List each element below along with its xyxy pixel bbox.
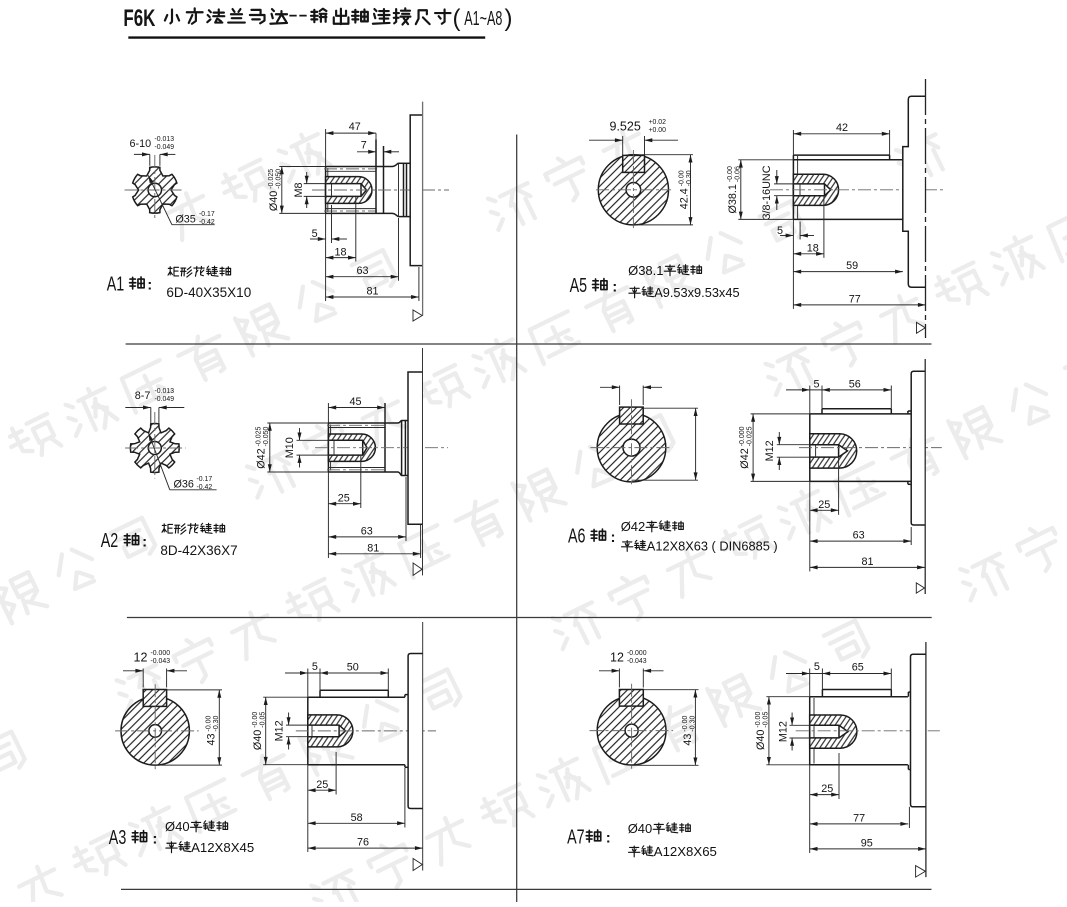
svg-text:25: 25	[338, 492, 350, 504]
svg-text::: :	[142, 533, 147, 550]
svg-text:63: 63	[357, 265, 369, 277]
svg-text:(: (	[453, 5, 461, 32]
svg-text:12: 12	[134, 651, 148, 665]
svg-text:M12: M12	[778, 721, 790, 742]
svg-text:A3: A3	[109, 827, 127, 849]
svg-text:-0.30: -0.30	[686, 170, 693, 186]
svg-text:-0.00: -0.00	[755, 712, 762, 728]
svg-text:25: 25	[818, 499, 830, 511]
svg-text:6-10: 6-10	[130, 138, 152, 150]
svg-text:-0.30: -0.30	[213, 715, 220, 731]
svg-text:-0.42: -0.42	[197, 484, 213, 491]
svg-text:43: 43	[682, 734, 694, 746]
svg-text:43: 43	[206, 733, 218, 745]
svg-text:81: 81	[862, 556, 874, 568]
svg-text:Ø42: Ø42	[739, 448, 751, 468]
svg-text::: :	[611, 529, 616, 546]
svg-text:63: 63	[361, 525, 373, 537]
svg-text:Ø35: Ø35	[175, 214, 195, 226]
svg-text:A1: A1	[107, 273, 125, 295]
svg-text:F6K: F6K	[123, 5, 155, 32]
svg-text::: :	[612, 278, 617, 295]
svg-text:25: 25	[821, 783, 833, 795]
svg-text:8D-42X36X7: 8D-42X36X7	[160, 543, 237, 558]
svg-text:-0.013: -0.013	[155, 136, 175, 143]
svg-text:A12X8X45: A12X8X45	[191, 840, 254, 855]
svg-text:+0.00: +0.00	[649, 127, 667, 134]
svg-text:-0.025: -0.025	[268, 169, 275, 189]
svg-text:Ø36: Ø36	[174, 479, 194, 491]
svg-text:58: 58	[351, 812, 363, 824]
svg-text:63: 63	[853, 530, 865, 542]
svg-text:3/8-16UNC: 3/8-16UNC	[761, 165, 773, 219]
svg-text:-0.00: -0.00	[682, 716, 689, 732]
svg-text:-0.043: -0.043	[151, 658, 171, 665]
svg-text:-0.049: -0.049	[155, 144, 175, 151]
svg-text:56: 56	[849, 379, 861, 391]
svg-text:-0.025: -0.025	[256, 426, 263, 446]
svg-text:8-7: 8-7	[135, 390, 151, 402]
svg-text:47: 47	[349, 121, 361, 133]
svg-text:5: 5	[814, 378, 820, 390]
svg-text:5: 5	[777, 225, 783, 237]
svg-text:6D-40X35X10: 6D-40X35X10	[166, 285, 251, 300]
svg-text:12: 12	[610, 651, 624, 665]
svg-text:-0.00: -0.00	[206, 715, 213, 731]
svg-text:5: 5	[814, 661, 820, 673]
svg-text:-0.17: -0.17	[199, 211, 215, 218]
svg-text:-0.050: -0.050	[276, 169, 283, 189]
svg-text:-0.025: -0.025	[747, 426, 754, 446]
svg-text:50: 50	[347, 661, 359, 673]
svg-text:M8: M8	[293, 183, 305, 198]
svg-text::: :	[147, 277, 152, 294]
svg-text:Ø40: Ø40	[165, 819, 190, 834]
svg-text:Ø42: Ø42	[256, 448, 268, 468]
svg-text:9.525: 9.525	[610, 120, 641, 134]
svg-text:95: 95	[861, 837, 873, 849]
svg-text:Ø38.1: Ø38.1	[727, 184, 739, 213]
svg-text:Ø40: Ø40	[628, 821, 653, 836]
svg-text:7: 7	[361, 139, 367, 151]
svg-text:18: 18	[807, 243, 819, 255]
svg-text:M10: M10	[284, 437, 296, 458]
svg-text:Ø40: Ø40	[755, 730, 767, 750]
svg-text:-0.00: -0.00	[727, 166, 734, 182]
svg-text:A12X8X65: A12X8X65	[654, 844, 717, 859]
svg-text:42: 42	[836, 122, 848, 134]
svg-text:81: 81	[367, 285, 379, 297]
svg-text:-0.050: -0.050	[263, 426, 270, 446]
svg-text:A1~A8: A1~A8	[464, 8, 502, 30]
svg-text:25: 25	[316, 779, 328, 791]
svg-text:): )	[505, 5, 513, 32]
svg-text:Ø42: Ø42	[621, 519, 646, 534]
svg-text:42.4: 42.4	[679, 188, 691, 209]
svg-text:-0.17: -0.17	[197, 476, 213, 483]
svg-text::: :	[606, 830, 611, 847]
svg-text:77: 77	[853, 812, 865, 824]
svg-text:-0.000: -0.000	[627, 650, 647, 657]
svg-text:+0.02: +0.02	[649, 119, 667, 126]
svg-text:Ø38.1: Ø38.1	[628, 263, 663, 278]
svg-text:-0.05: -0.05	[260, 712, 267, 728]
svg-text:A12X8X63 ( DIN6885 ): A12X8X63 ( DIN6885 )	[647, 539, 778, 554]
svg-text:M12: M12	[764, 440, 776, 461]
svg-text:-0.013: -0.013	[155, 388, 175, 395]
svg-text:81: 81	[367, 542, 379, 554]
svg-text:-0.30: -0.30	[690, 716, 697, 732]
svg-text:-0.049: -0.049	[155, 396, 175, 403]
svg-text:-0.000: -0.000	[739, 426, 746, 446]
svg-text:-0.043: -0.043	[627, 658, 647, 665]
svg-text:--: --	[288, 2, 308, 27]
svg-text:Ø40: Ø40	[268, 191, 280, 211]
svg-text:65: 65	[852, 661, 864, 673]
svg-text:A7: A7	[567, 826, 585, 848]
svg-text:76: 76	[357, 837, 369, 849]
svg-text:-0.00: -0.00	[252, 712, 259, 728]
svg-text:59: 59	[846, 260, 858, 272]
svg-text:-0.000: -0.000	[151, 650, 171, 657]
svg-text:A5: A5	[570, 275, 588, 297]
svg-text:M12: M12	[274, 720, 286, 741]
svg-text:A9.53x9.53x45: A9.53x9.53x45	[654, 285, 739, 300]
svg-text:A2: A2	[101, 530, 119, 552]
svg-text:77: 77	[849, 294, 861, 306]
svg-text:Ø40: Ø40	[252, 730, 264, 750]
svg-text::: :	[152, 830, 157, 847]
svg-text:45: 45	[350, 396, 362, 408]
svg-text:5: 5	[312, 661, 318, 673]
svg-text:-0.05: -0.05	[763, 712, 770, 728]
svg-text:A6: A6	[568, 526, 586, 548]
svg-text:-0.42: -0.42	[199, 219, 215, 226]
svg-text:-0.06: -0.06	[735, 166, 742, 182]
svg-text:18: 18	[335, 246, 347, 258]
svg-text:-0.00: -0.00	[679, 170, 686, 186]
svg-text:5: 5	[312, 228, 318, 240]
